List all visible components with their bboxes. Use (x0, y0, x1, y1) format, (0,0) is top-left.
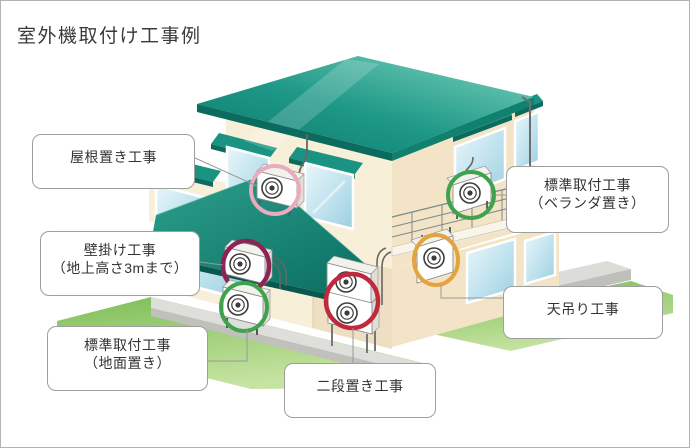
callout-wall-label: 壁掛け工事 (41, 241, 199, 259)
callout-ground-label: 標準取付工事 (48, 336, 207, 354)
callout-roof-label: 屋根置き工事 (33, 148, 194, 166)
installation-diagram: 室外機取付け工事例 (0, 0, 690, 448)
callout-veranda-label2: （ベランダ置き） (507, 194, 668, 212)
callout-two-tier-label: 二段置き工事 (285, 377, 435, 395)
callout-ceiling-label: 天吊り工事 (504, 300, 662, 318)
callout-two-tier: 二段置き工事 (284, 363, 436, 418)
callout-veranda-label: 標準取付工事 (507, 176, 668, 194)
callout-ground: 標準取付工事 （地面置き） (47, 326, 208, 391)
callout-veranda: 標準取付工事 （ベランダ置き） (506, 166, 669, 233)
callout-ceiling: 天吊り工事 (503, 286, 663, 339)
callout-roof: 屋根置き工事 (32, 134, 195, 189)
callout-wall: 壁掛け工事 （地上高さ3mまで） (40, 231, 200, 296)
callout-ground-label2: （地面置き） (48, 354, 207, 372)
callout-wall-label2: （地上高さ3mまで） (41, 259, 199, 277)
